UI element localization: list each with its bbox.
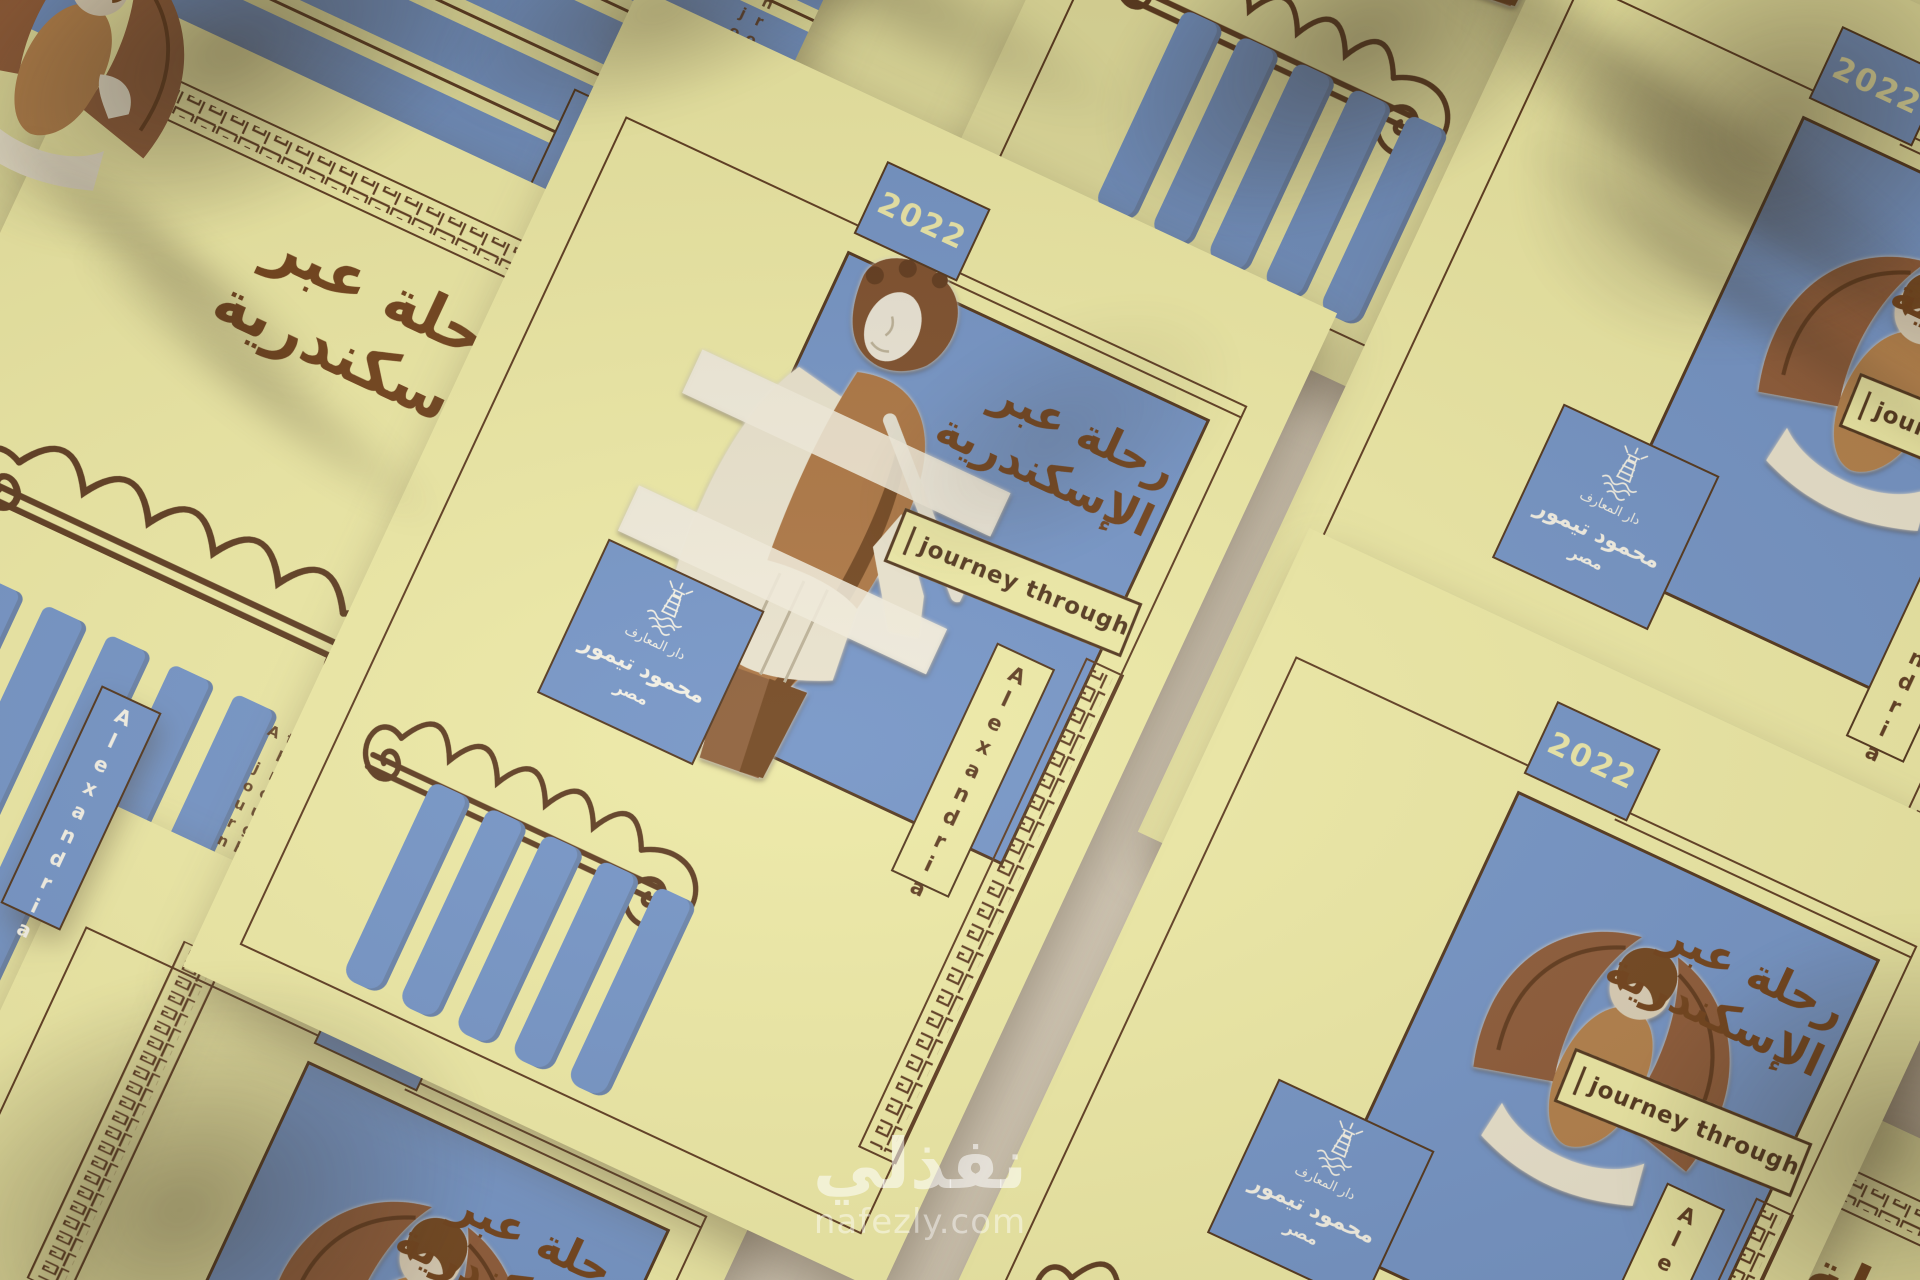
ribbon-bracket-icon [1858, 391, 1872, 420]
mockup-scene: 2022 رحلة عبر الإسكندرية journey through… [0, 0, 1920, 1280]
year-text: 2022 [1827, 50, 1920, 122]
poster-bottom-right: 2022 رحلة عبر الإسكندرية journey through… [1045, 640, 1815, 1280]
ribbon-bracket-icon [903, 526, 917, 555]
ribbon-bracket-icon [1573, 1066, 1587, 1095]
year-text: 2022 [872, 185, 973, 257]
year-text: 2022 [1542, 725, 1643, 797]
poster-center-front-cover: 2022 رحلة عبر الإسكندرية journey through… [375, 100, 1145, 1180]
